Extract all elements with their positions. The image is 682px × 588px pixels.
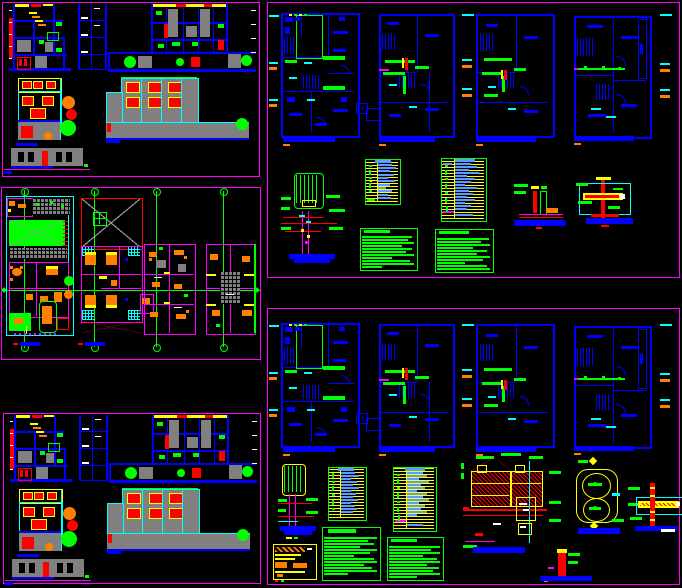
cad-shape — [149, 258, 152, 261]
cad-shape — [45, 543, 53, 551]
building-section-right — [108, 4, 256, 72]
cad-shape — [660, 14, 672, 16]
cad-shape — [455, 172, 479, 174]
cad-shape — [462, 369, 472, 371]
cad-shape — [85, 575, 89, 578]
cad-shape — [514, 220, 566, 226]
cad-shape — [39, 435, 47, 437]
cad-shape — [44, 132, 52, 140]
legend-table-4 — [393, 467, 437, 532]
cad-shape — [275, 571, 305, 573]
cad-shape — [64, 448, 66, 479]
valve-cross-section-detail — [628, 481, 682, 533]
cad-shape — [251, 24, 256, 25]
cad-shape — [169, 244, 170, 333]
cad-shape — [9, 248, 67, 259]
cad-shape — [442, 159, 484, 219]
cad-shape — [437, 253, 477, 255]
standpipe-detail — [540, 547, 600, 586]
cad-shape — [462, 88, 472, 90]
cad-shape — [558, 553, 566, 575]
cad-shape — [33, 81, 43, 89]
cad-shape — [66, 109, 77, 120]
cad-shape — [54, 292, 62, 302]
cad-shape — [461, 463, 464, 469]
cad-shape — [296, 175, 320, 203]
cad-shape — [108, 69, 256, 72]
cad-shape — [9, 18, 13, 58]
cad-shape — [341, 481, 357, 483]
cad-shape — [14, 417, 16, 481]
cad-shape — [650, 487, 655, 489]
cad-shape — [576, 183, 588, 186]
cad-shape — [541, 186, 547, 189]
cad-shape — [455, 159, 475, 162]
edge-annotations — [268, 3, 681, 153]
cad-shape — [106, 92, 123, 124]
cad-shape — [278, 516, 314, 517]
cad-shape — [369, 177, 372, 179]
scale-bar — [4, 171, 12, 174]
cad-shape — [18, 204, 26, 208]
cad-shape — [519, 217, 563, 218]
cad-shape — [10, 457, 13, 458]
cad-shape — [252, 463, 257, 464]
cad-shape — [149, 252, 157, 257]
cad-shape — [152, 282, 160, 287]
cad-shape — [463, 507, 469, 511]
cad-shape — [81, 274, 141, 275]
cad-shape — [149, 508, 163, 519]
cad-shape — [25, 470, 28, 477]
cad-shape — [455, 178, 475, 180]
cad-shape — [61, 531, 77, 547]
cad-shape — [82, 310, 94, 320]
cad-shape — [269, 15, 279, 17]
cad-shape — [332, 486, 334, 491]
cad-shape — [284, 531, 312, 535]
cad-shape — [241, 55, 252, 66]
cad-shape — [341, 502, 351, 504]
cad-shape — [43, 4, 53, 6]
cad-shape — [127, 508, 141, 519]
cad-shape — [9, 201, 15, 206]
cad-shape — [437, 265, 487, 267]
cad-shape — [439, 231, 469, 234]
cad-shape — [57, 459, 63, 463]
cad-shape — [329, 227, 343, 230]
cad-shape — [294, 537, 298, 539]
cad-shape — [295, 494, 296, 530]
cad-shape — [520, 526, 526, 528]
cad-shape — [56, 48, 62, 52]
cad-shape — [397, 493, 399, 498]
cad-shape — [275, 580, 278, 582]
cad-shape — [324, 537, 377, 539]
cad-shape — [332, 494, 335, 496]
cad-shape — [216, 324, 220, 327]
cad-shape — [125, 258, 128, 261]
cad-shape — [199, 418, 200, 463]
cad-shape — [455, 184, 465, 186]
cad-shape — [33, 427, 41, 429]
cad-shape — [437, 268, 490, 270]
cad-shape — [462, 14, 474, 16]
cad-shape — [154, 415, 229, 418]
cad-shape — [338, 468, 354, 471]
cad-shape — [389, 558, 437, 560]
cad-shape — [99, 276, 107, 279]
cad-shape — [582, 473, 611, 499]
cad-shape — [437, 250, 487, 252]
cad-shape — [226, 294, 234, 295]
cad-shape — [26, 326, 27, 334]
cad-shape — [64, 290, 73, 299]
cad-shape — [10, 429, 14, 469]
cad-shape — [341, 484, 353, 486]
cad-shape — [20, 470, 23, 477]
cad-shape — [578, 460, 588, 463]
cad-shape — [281, 207, 290, 210]
cad-shape — [46, 453, 54, 463]
cad-shape — [78, 37, 107, 38]
cad-shape — [378, 170, 390, 172]
cad-shape — [307, 235, 310, 238]
cad-shape — [81, 17, 88, 19]
cad-shape — [437, 238, 489, 240]
scale-bar — [5, 582, 13, 585]
cad-shape — [437, 262, 465, 264]
cad-shape — [407, 487, 425, 489]
cad-shape — [182, 489, 183, 533]
cad-shape — [42, 151, 48, 166]
cad-shape — [21, 126, 33, 138]
cad-shape — [60, 120, 76, 136]
cad-shape — [661, 529, 675, 532]
cad-shape — [18, 451, 32, 463]
cad-shape — [660, 405, 670, 408]
cad-shape — [109, 465, 111, 481]
cad-shape — [124, 56, 136, 68]
cad-shape — [35, 20, 43, 22]
cad-shape — [269, 62, 278, 64]
cad-shape — [471, 471, 511, 507]
cad-shape — [523, 509, 529, 511]
cad-shape — [150, 312, 158, 317]
cad-shape — [549, 501, 561, 504]
cad-shape — [85, 252, 96, 255]
cad-shape — [546, 208, 558, 213]
cad-shape — [20, 266, 23, 269]
cad-shape — [378, 180, 395, 182]
building-section-left — [9, 4, 75, 74]
plans-row — [268, 3, 681, 153]
cad-shape — [660, 373, 670, 375]
cad-shape — [151, 4, 153, 54]
cad-shape — [443, 211, 454, 213]
cad-shape — [168, 9, 178, 37]
cad-shape — [324, 561, 377, 563]
cad-shape — [186, 26, 197, 37]
cad-shape — [107, 533, 250, 534]
cad-shape — [341, 493, 356, 495]
cad-shape — [407, 475, 427, 477]
cad-shape — [437, 256, 490, 258]
cad-shape — [362, 242, 414, 244]
cad-shape — [32, 415, 42, 418]
cad-shape — [369, 190, 372, 192]
cad-shape — [378, 194, 388, 196]
cad-shape — [370, 180, 372, 182]
legend-table-2 — [441, 158, 487, 222]
cad-shape — [177, 415, 187, 418]
cad-shape — [455, 163, 471, 165]
cad-shape — [341, 499, 358, 501]
cad-shape — [9, 34, 12, 35]
cad-shape — [23, 507, 35, 517]
cad-shape — [324, 564, 364, 566]
cad-shape — [455, 196, 467, 198]
cad-shape — [50, 201, 53, 204]
cad-shape — [378, 174, 394, 176]
cad-shape — [36, 262, 37, 316]
cad-shape — [455, 181, 471, 183]
cad-shape — [192, 468, 201, 478]
cad-shape — [277, 574, 283, 577]
cad-shape — [405, 468, 425, 471]
cad-shape — [389, 573, 440, 575]
cad-shape — [269, 99, 278, 101]
cad-shape — [454, 159, 455, 219]
cad-shape — [10, 433, 13, 434]
cad-shape — [278, 503, 312, 504]
cad-shape — [56, 22, 62, 26]
cad-shape — [78, 69, 107, 70]
cad-shape — [341, 505, 355, 507]
cad-shape — [151, 39, 228, 41]
cad-shape — [461, 473, 464, 479]
cad-shape — [43, 562, 49, 577]
cad-shape — [302, 200, 316, 207]
cad-shape — [177, 469, 185, 477]
pump-base-detail — [514, 179, 568, 229]
cad-shape — [650, 519, 655, 521]
cad-shape — [407, 481, 429, 483]
cad-shape — [593, 506, 597, 510]
cad-shape — [47, 492, 57, 500]
cad-shape — [369, 165, 372, 167]
cad-shape — [36, 431, 44, 433]
cad-shape — [162, 489, 163, 533]
cad-shape — [174, 307, 182, 308]
cad-shape — [389, 567, 439, 569]
cad-shape — [437, 247, 473, 249]
building-section-left — [10, 415, 76, 485]
perimeter-building-elevation — [4, 146, 104, 176]
cad-shape — [660, 95, 670, 98]
cad-shape — [191, 57, 200, 67]
cad-shape — [299, 215, 305, 217]
cad-shape — [13, 6, 15, 70]
notes-block-2 — [435, 229, 494, 273]
cad-shape — [82, 462, 89, 464]
scale-bar — [78, 342, 106, 348]
cad-shape — [19, 59, 22, 66]
cad-shape — [63, 507, 76, 520]
cad-shape — [219, 435, 225, 439]
cad-shape — [389, 552, 440, 554]
cad-shape — [22, 96, 34, 106]
cad-shape — [20, 342, 40, 346]
cad-shape — [28, 152, 34, 162]
cad-shape — [378, 164, 392, 166]
cad-shape — [85, 305, 96, 308]
cad-shape — [11, 166, 53, 168]
cad-shape — [389, 549, 431, 551]
cad-shape — [462, 65, 472, 68]
cad-shape — [153, 344, 161, 352]
cad-shape — [152, 450, 229, 452]
furnished-plan — [144, 244, 196, 334]
cad-shape — [407, 490, 417, 492]
cad-shape — [81, 34, 88, 36]
cad-shape — [10, 278, 13, 281]
cad-shape — [446, 206, 448, 212]
cad-shape — [455, 202, 465, 204]
cad-shape — [471, 495, 509, 496]
cad-shape — [54, 415, 56, 465]
cad-shape — [31, 4, 41, 7]
cad-shape — [169, 420, 179, 448]
cad-shape — [324, 558, 374, 560]
rear-elevation — [107, 487, 253, 555]
cad-shape — [362, 245, 402, 247]
cad-shape — [462, 404, 472, 407]
cad-shape — [205, 415, 213, 418]
cad-shape — [15, 4, 29, 7]
cad-shape — [226, 4, 228, 54]
cad-shape — [29, 12, 37, 14]
cad-shape — [14, 333, 58, 335]
cad-shape — [173, 453, 181, 457]
front-elevation — [17, 487, 85, 557]
cad-shape — [548, 567, 554, 569]
sheet-installations-top — [267, 2, 680, 278]
cad-shape — [81, 321, 141, 333]
cad-shape — [585, 195, 619, 198]
cad-shape — [82, 199, 140, 247]
twin-chamber-plan-detail — [573, 457, 625, 541]
cad-shape — [284, 466, 302, 492]
cad-shape — [407, 505, 425, 507]
cad-shape — [91, 188, 99, 196]
cad-shape — [183, 7, 184, 52]
cad-shape — [107, 533, 250, 550]
cad-shape — [79, 431, 108, 432]
cad-shape — [228, 54, 241, 68]
cad-shape — [362, 266, 382, 268]
cad-shape — [32, 16, 40, 18]
notes-block-4 — [387, 537, 444, 581]
cad-shape — [275, 562, 287, 568]
cad-shape — [650, 483, 655, 529]
cad-shape — [39, 40, 44, 44]
cad-shape — [23, 492, 33, 500]
cad-shape — [106, 305, 117, 308]
cad-shape — [47, 32, 59, 41]
cad-shape — [57, 433, 63, 437]
cad-shape — [164, 24, 168, 38]
cad-shape — [125, 298, 128, 301]
cad-shape — [462, 324, 474, 326]
cad-shape — [324, 567, 372, 569]
cad-shape — [82, 428, 89, 430]
cad-shape — [341, 490, 351, 492]
building-section-right — [109, 415, 257, 483]
cad-shape — [186, 310, 189, 313]
cad-shape — [275, 547, 305, 552]
cad-shape — [174, 250, 184, 255]
cad-shape — [12, 577, 54, 579]
cad-shape — [278, 521, 298, 522]
cad-shape — [455, 208, 467, 210]
edge-annotations — [268, 313, 681, 463]
cad-shape — [125, 467, 137, 479]
cad-shape — [206, 304, 216, 306]
cad-shape — [397, 474, 400, 476]
cad-shape — [168, 82, 182, 93]
cad-shape — [18, 152, 24, 162]
cad-shape — [397, 507, 399, 512]
sheet-installations-bottom — [267, 308, 680, 585]
cad-shape — [126, 97, 140, 108]
cad-shape — [378, 187, 386, 189]
cad-shape — [389, 576, 417, 578]
cad-shape — [324, 546, 360, 548]
cad-shape — [108, 54, 110, 70]
cad-shape — [407, 478, 419, 480]
cad-shape — [178, 264, 186, 272]
cad-shape — [269, 414, 277, 417]
cad-shape — [568, 561, 578, 564]
cad-shape — [378, 177, 388, 179]
cad-shape — [283, 217, 323, 218]
cad-shape — [26, 294, 33, 300]
cad-shape — [193, 453, 199, 457]
cad-shape — [101, 288, 141, 289]
cad-shape — [254, 244, 256, 333]
cad-shape — [158, 44, 164, 48]
cad-shape — [660, 399, 670, 401]
cad-shape — [455, 187, 477, 189]
cad-shape — [78, 343, 83, 345]
cad-shape — [324, 555, 354, 557]
cad-shape — [549, 519, 561, 522]
cad-shape — [237, 529, 249, 541]
cad-shape — [31, 519, 47, 530]
structural-grid-elevation — [79, 415, 109, 483]
cad-shape — [407, 499, 429, 501]
cad-shape — [389, 546, 440, 548]
cad-shape — [269, 377, 277, 380]
cad-shape — [78, 20, 107, 21]
cad-shape — [169, 508, 183, 519]
cad-shape — [455, 214, 473, 216]
cad-shape — [218, 24, 224, 28]
cad-shape — [227, 415, 229, 465]
legend-table-1 — [365, 159, 401, 205]
cad-shape — [236, 118, 248, 130]
